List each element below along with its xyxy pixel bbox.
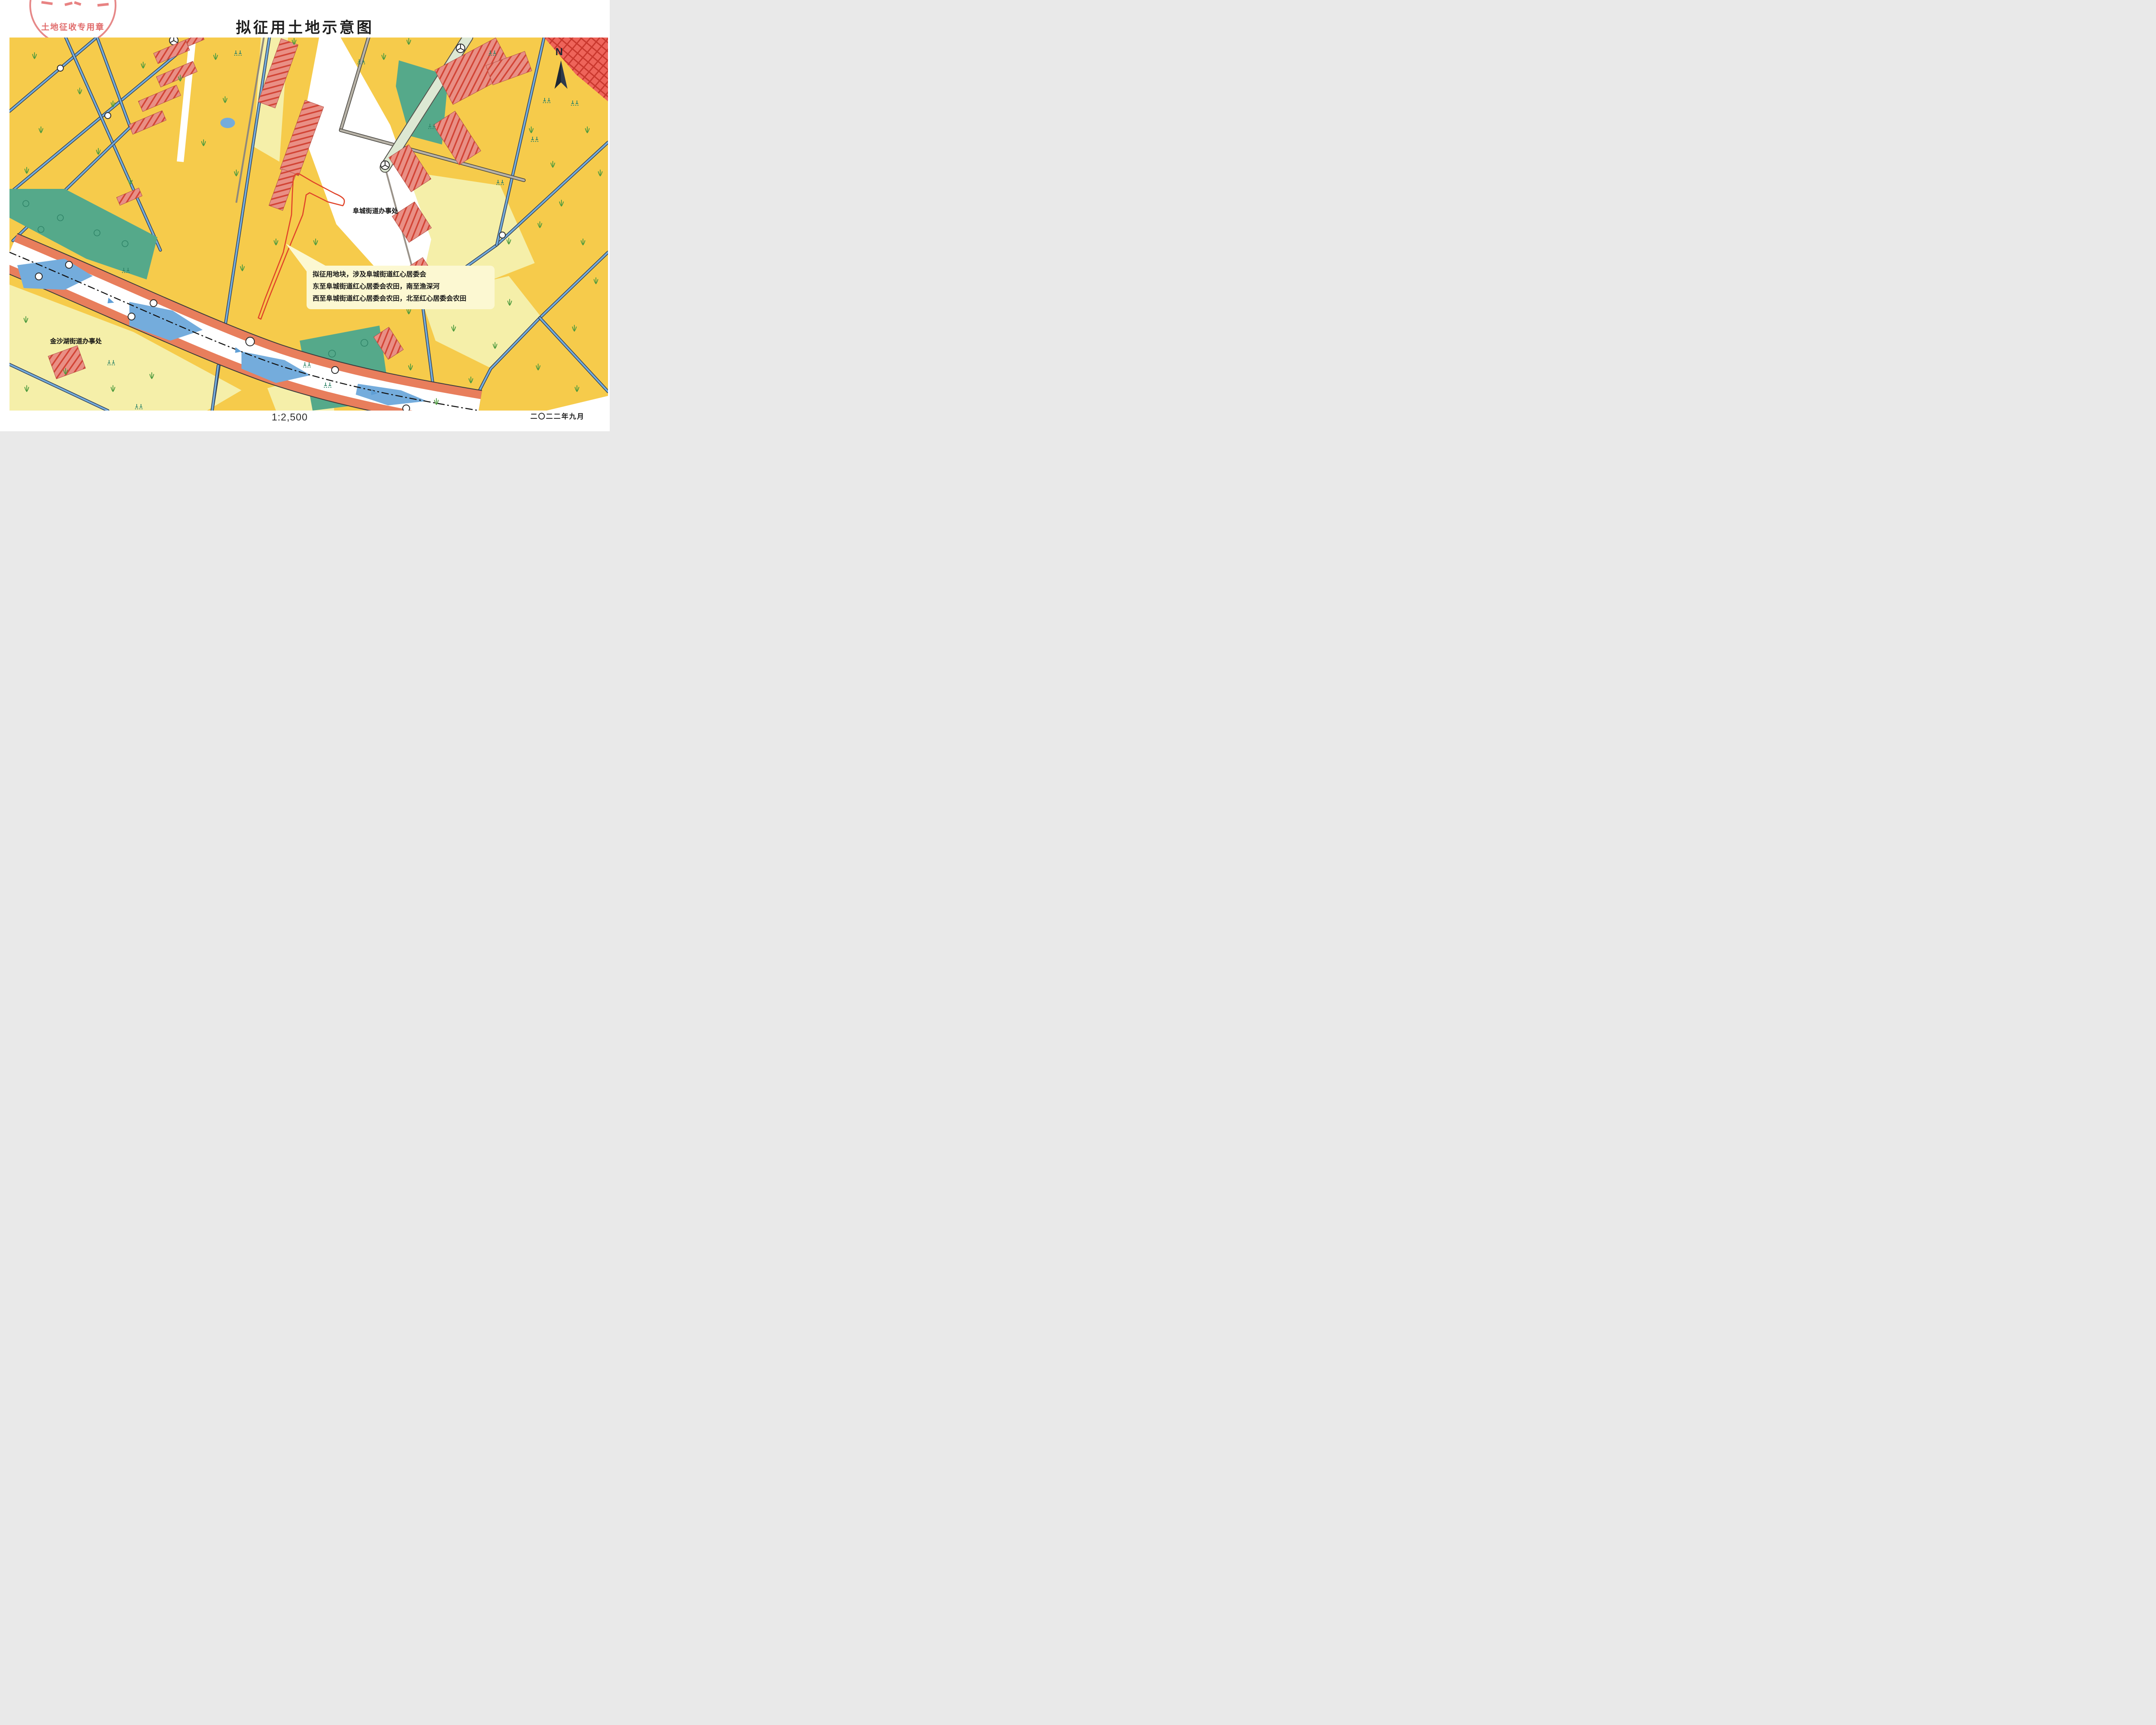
pond [220, 118, 235, 128]
annotation-line: 东至阜城街道红心居委会农田，南至渔深河 [313, 281, 489, 293]
label-fucheng-subdistrict-office: 阜城街道办事处 [353, 206, 398, 215]
annotation-line: 西至阜城街道红心居委会农田，北至红心居委会农田 [313, 293, 489, 305]
map-scale: 1:2,500 [272, 411, 308, 423]
annotation-box: 拟征用地块，涉及阜城街道红心居委会 东至阜城街道红心居委会农田，南至渔深河 西至… [307, 266, 495, 309]
well-icon [381, 161, 389, 169]
annotation-line: 拟征用地块，涉及阜城街道红心居委会 [313, 269, 489, 281]
scanned-land-map-page: 拟征用土地示意图 土地征收专用章 [0, 0, 610, 431]
label-jinshahu-subdistrict-office: 金沙湖街道办事处 [50, 336, 102, 345]
seal-text: 土地征收专用章 [22, 21, 123, 32]
svg-text:N: N [555, 46, 563, 58]
map-drawing: N [9, 38, 608, 411]
map-date: 二〇二二年九月 [530, 411, 585, 421]
well-icon [456, 44, 465, 53]
map-canvas: N [9, 38, 608, 411]
